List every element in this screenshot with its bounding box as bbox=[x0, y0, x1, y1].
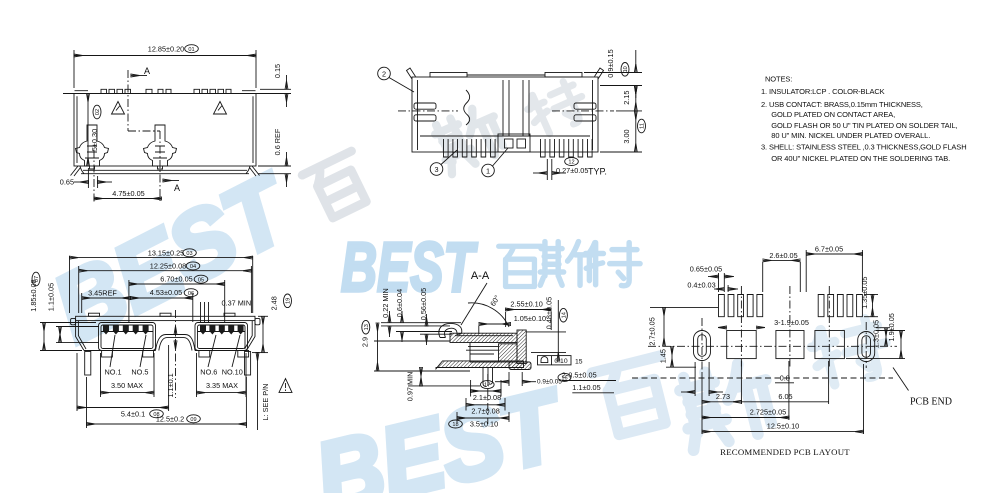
svg-text:2.6±0.05: 2.6±0.05 bbox=[769, 251, 797, 260]
svg-text:2.48: 2.48 bbox=[270, 296, 279, 310]
svg-text:RECOMMENDED PCB LAYOUT: RECOMMENDED PCB LAYOUT bbox=[720, 447, 850, 457]
svg-text:13: 13 bbox=[364, 324, 370, 330]
svg-text:2.7±0.08: 2.7±0.08 bbox=[471, 406, 499, 415]
svg-text:3.50 MAX: 3.50 MAX bbox=[111, 381, 143, 390]
svg-text:2.15: 2.15 bbox=[622, 91, 631, 105]
svg-text:NOTES:: NOTES: bbox=[765, 74, 792, 83]
svg-text:12: 12 bbox=[568, 160, 574, 166]
svg-text:6.7±0.05: 6.7±0.05 bbox=[815, 245, 843, 254]
svg-text:3.35 MAX: 3.35 MAX bbox=[206, 381, 238, 390]
svg-text:0.6±0.04: 0.6±0.04 bbox=[395, 289, 404, 317]
svg-text:0.65±0.05: 0.65±0.05 bbox=[690, 264, 722, 273]
svg-text:0.9±0.15: 0.9±0.15 bbox=[606, 49, 615, 77]
svg-text:1.1±0.05: 1.1±0.05 bbox=[47, 283, 56, 311]
svg-text:13.15±0.25: 13.15±0.25 bbox=[148, 248, 184, 257]
svg-text:TYP.: TYP. bbox=[588, 167, 607, 177]
svg-text:12.5±0.10: 12.5±0.10 bbox=[767, 422, 799, 431]
svg-text:6.05: 6.05 bbox=[778, 392, 792, 401]
svg-text:18: 18 bbox=[452, 422, 458, 428]
svg-text:0.56±0.05: 0.56±0.05 bbox=[419, 288, 428, 320]
svg-text:0.15: 0.15 bbox=[273, 64, 282, 78]
svg-text:0.4±0.03: 0.4±0.03 bbox=[687, 280, 715, 289]
svg-text:2.55±0.10: 2.55±0.10 bbox=[510, 299, 542, 308]
svg-text:1.05±0.10: 1.05±0.10 bbox=[514, 314, 546, 323]
svg-text:NO.5: NO.5 bbox=[131, 368, 148, 377]
svg-text:A: A bbox=[174, 183, 180, 193]
svg-text:3: 3 bbox=[434, 165, 438, 174]
svg-text:3-1.9±0.05: 3-1.9±0.05 bbox=[774, 318, 809, 327]
svg-text:2.1±0.08: 2.1±0.08 bbox=[473, 393, 501, 402]
svg-text:2.9: 2.9 bbox=[361, 337, 370, 347]
svg-text:L: SEE P/N: L: SEE P/N bbox=[261, 384, 270, 421]
svg-text:GOLD PLATED ON CONTACT AREA,: GOLD PLATED ON CONTACT AREA, bbox=[771, 110, 895, 119]
svg-text:05: 05 bbox=[198, 277, 204, 283]
svg-text:4.53±0.05: 4.53±0.05 bbox=[150, 288, 182, 297]
svg-text:BEST: BEST bbox=[305, 368, 576, 493]
svg-text:1.45: 1.45 bbox=[659, 349, 668, 363]
svg-text:0.48±0.05: 0.48±0.05 bbox=[545, 297, 554, 329]
svg-text:01: 01 bbox=[188, 47, 194, 53]
svg-text:12.25±0.08: 12.25±0.08 bbox=[150, 261, 186, 270]
svg-text:3.5±0.10: 3.5±0.10 bbox=[470, 420, 498, 429]
svg-text:11: 11 bbox=[640, 123, 646, 129]
svg-text:17: 17 bbox=[484, 383, 490, 389]
svg-text:0.65: 0.65 bbox=[60, 178, 74, 187]
svg-text:04: 04 bbox=[190, 264, 196, 270]
svg-text:03: 03 bbox=[186, 251, 192, 257]
svg-text:0.22 MIN: 0.22 MIN bbox=[381, 288, 390, 318]
svg-text:NO.10: NO.10 bbox=[222, 368, 243, 377]
svg-text:GOLD FLASH OR 50 U" TIN PLATED: GOLD FLASH OR 50 U" TIN PLATED ON SOLDER… bbox=[771, 121, 957, 130]
svg-text:NO.6: NO.6 bbox=[200, 368, 217, 377]
svg-text:12.5±0.2: 12.5±0.2 bbox=[156, 414, 184, 423]
svg-text:3.45REF: 3.45REF bbox=[88, 289, 117, 298]
svg-text:0.37 MIN: 0.37 MIN bbox=[222, 299, 252, 308]
svg-text:07: 07 bbox=[34, 276, 40, 282]
svg-text:2.7±0.05: 2.7±0.05 bbox=[648, 317, 657, 345]
svg-text:02: 02 bbox=[95, 109, 101, 115]
svg-text:2-0.5±0.05: 2-0.5±0.05 bbox=[562, 371, 597, 380]
svg-text:10: 10 bbox=[623, 66, 629, 72]
svg-text:1.9±0.05: 1.9±0.05 bbox=[887, 313, 896, 341]
svg-text:80 U" MIN. NICKEL UNDER PLATED: 80 U" MIN. NICKEL UNDER PLATED OVERALL. bbox=[771, 131, 930, 140]
svg-text:A-A: A-A bbox=[471, 270, 490, 282]
svg-text:3.00: 3.00 bbox=[622, 129, 631, 143]
svg-text:2: 2 bbox=[382, 69, 386, 78]
svg-text:06: 06 bbox=[188, 291, 194, 297]
svg-text:12.85±0.20: 12.85±0.20 bbox=[148, 45, 184, 54]
svg-text:0.97 MIN: 0.97 MIN bbox=[406, 372, 415, 402]
svg-text:5±0.30: 5±0.30 bbox=[90, 129, 99, 151]
svg-text:2.725±0.05: 2.725±0.05 bbox=[750, 408, 786, 417]
svg-text:15: 15 bbox=[575, 359, 583, 366]
svg-text:2.73: 2.73 bbox=[716, 392, 730, 401]
svg-text:2. USB CONTACT: BRASS,0.15mm T: 2. USB CONTACT: BRASS,0.15mm THICKNESS, bbox=[761, 100, 923, 109]
svg-text:1.1±0.05: 1.1±0.05 bbox=[572, 383, 600, 392]
svg-text:0.10: 0.10 bbox=[554, 358, 567, 365]
svg-text:14: 14 bbox=[561, 312, 567, 318]
svg-text:09: 09 bbox=[190, 417, 196, 423]
svg-text:0.27±0.05: 0.27±0.05 bbox=[556, 166, 588, 175]
svg-text:BEST: BEST bbox=[341, 228, 478, 306]
svg-text:A: A bbox=[144, 66, 150, 76]
svg-text:5.4±0.1: 5.4±0.1 bbox=[121, 409, 145, 418]
svg-text:NO.1: NO.1 bbox=[105, 368, 122, 377]
svg-text:3. SHELL: STAINLESS STEEL ,0.3: 3. SHELL: STAINLESS STEEL ,0.3 THICKNESS… bbox=[761, 143, 966, 152]
svg-text:6.70±0.05: 6.70±0.05 bbox=[160, 275, 192, 284]
svg-text:0.6 REF: 0.6 REF bbox=[273, 128, 282, 155]
svg-text:1.1±0.1: 1.1±0.1 bbox=[166, 373, 175, 397]
svg-text:1.35±0.05: 1.35±0.05 bbox=[860, 276, 869, 308]
svg-text:1.3±0.05: 1.3±0.05 bbox=[871, 320, 880, 348]
svg-text:1: 1 bbox=[486, 166, 490, 175]
svg-text:19: 19 bbox=[286, 298, 292, 304]
svg-text:OR 40U" NICKEL PLATED ON THE S: OR 40U" NICKEL PLATED ON THE SOLDERING T… bbox=[771, 154, 950, 163]
svg-text:PCB END: PCB END bbox=[910, 397, 952, 408]
svg-text:60°: 60° bbox=[488, 294, 502, 308]
svg-text:1. INSULATOR:LCP . COLOR-BLACK: 1. INSULATOR:LCP . COLOR-BLACK bbox=[761, 87, 885, 96]
svg-text:4.75±0.05: 4.75±0.05 bbox=[112, 189, 144, 198]
